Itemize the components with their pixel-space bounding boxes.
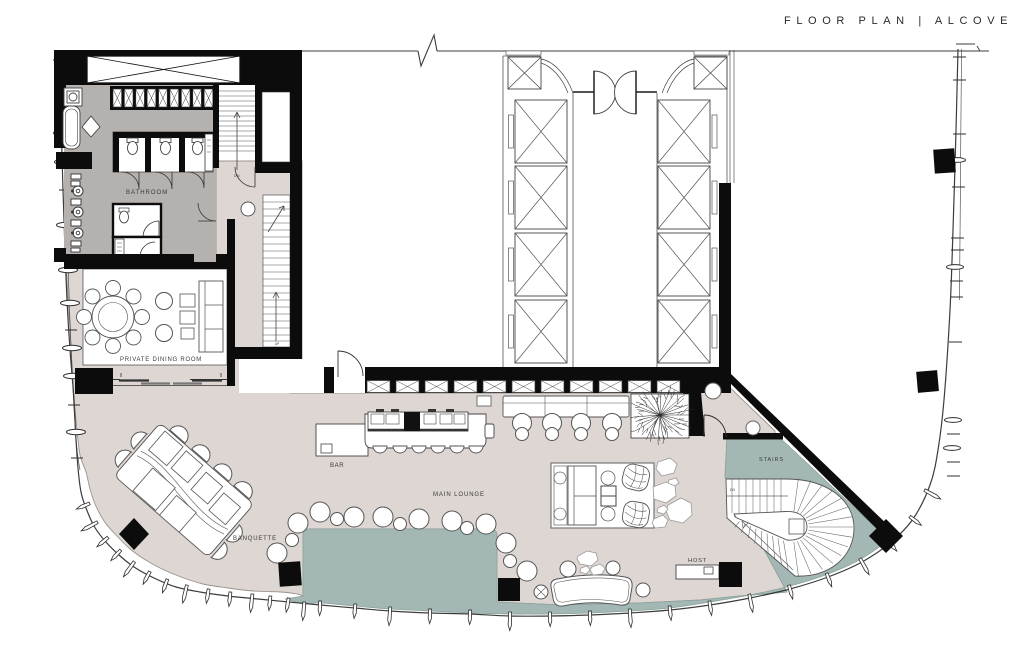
svg-text:BATHROOM: BATHROOM: [126, 190, 168, 196]
svg-text:DN: DN: [730, 488, 735, 492]
svg-text:BAR: BAR: [330, 463, 344, 469]
svg-text:FLOOR PLAN | ALCOVE: FLOOR PLAN | ALCOVE: [784, 15, 1013, 27]
svg-text:PRIVATE DINING ROOM: PRIVATE DINING ROOM: [120, 357, 202, 363]
svg-text:STAIRS: STAIRS: [759, 457, 784, 463]
svg-text:BANQUETTE: BANQUETTE: [233, 536, 277, 542]
svg-text:MAIN LOUNGE: MAIN LOUNGE: [433, 492, 485, 498]
svg-text:UP: UP: [275, 342, 279, 346]
svg-text:HOST: HOST: [688, 558, 707, 564]
